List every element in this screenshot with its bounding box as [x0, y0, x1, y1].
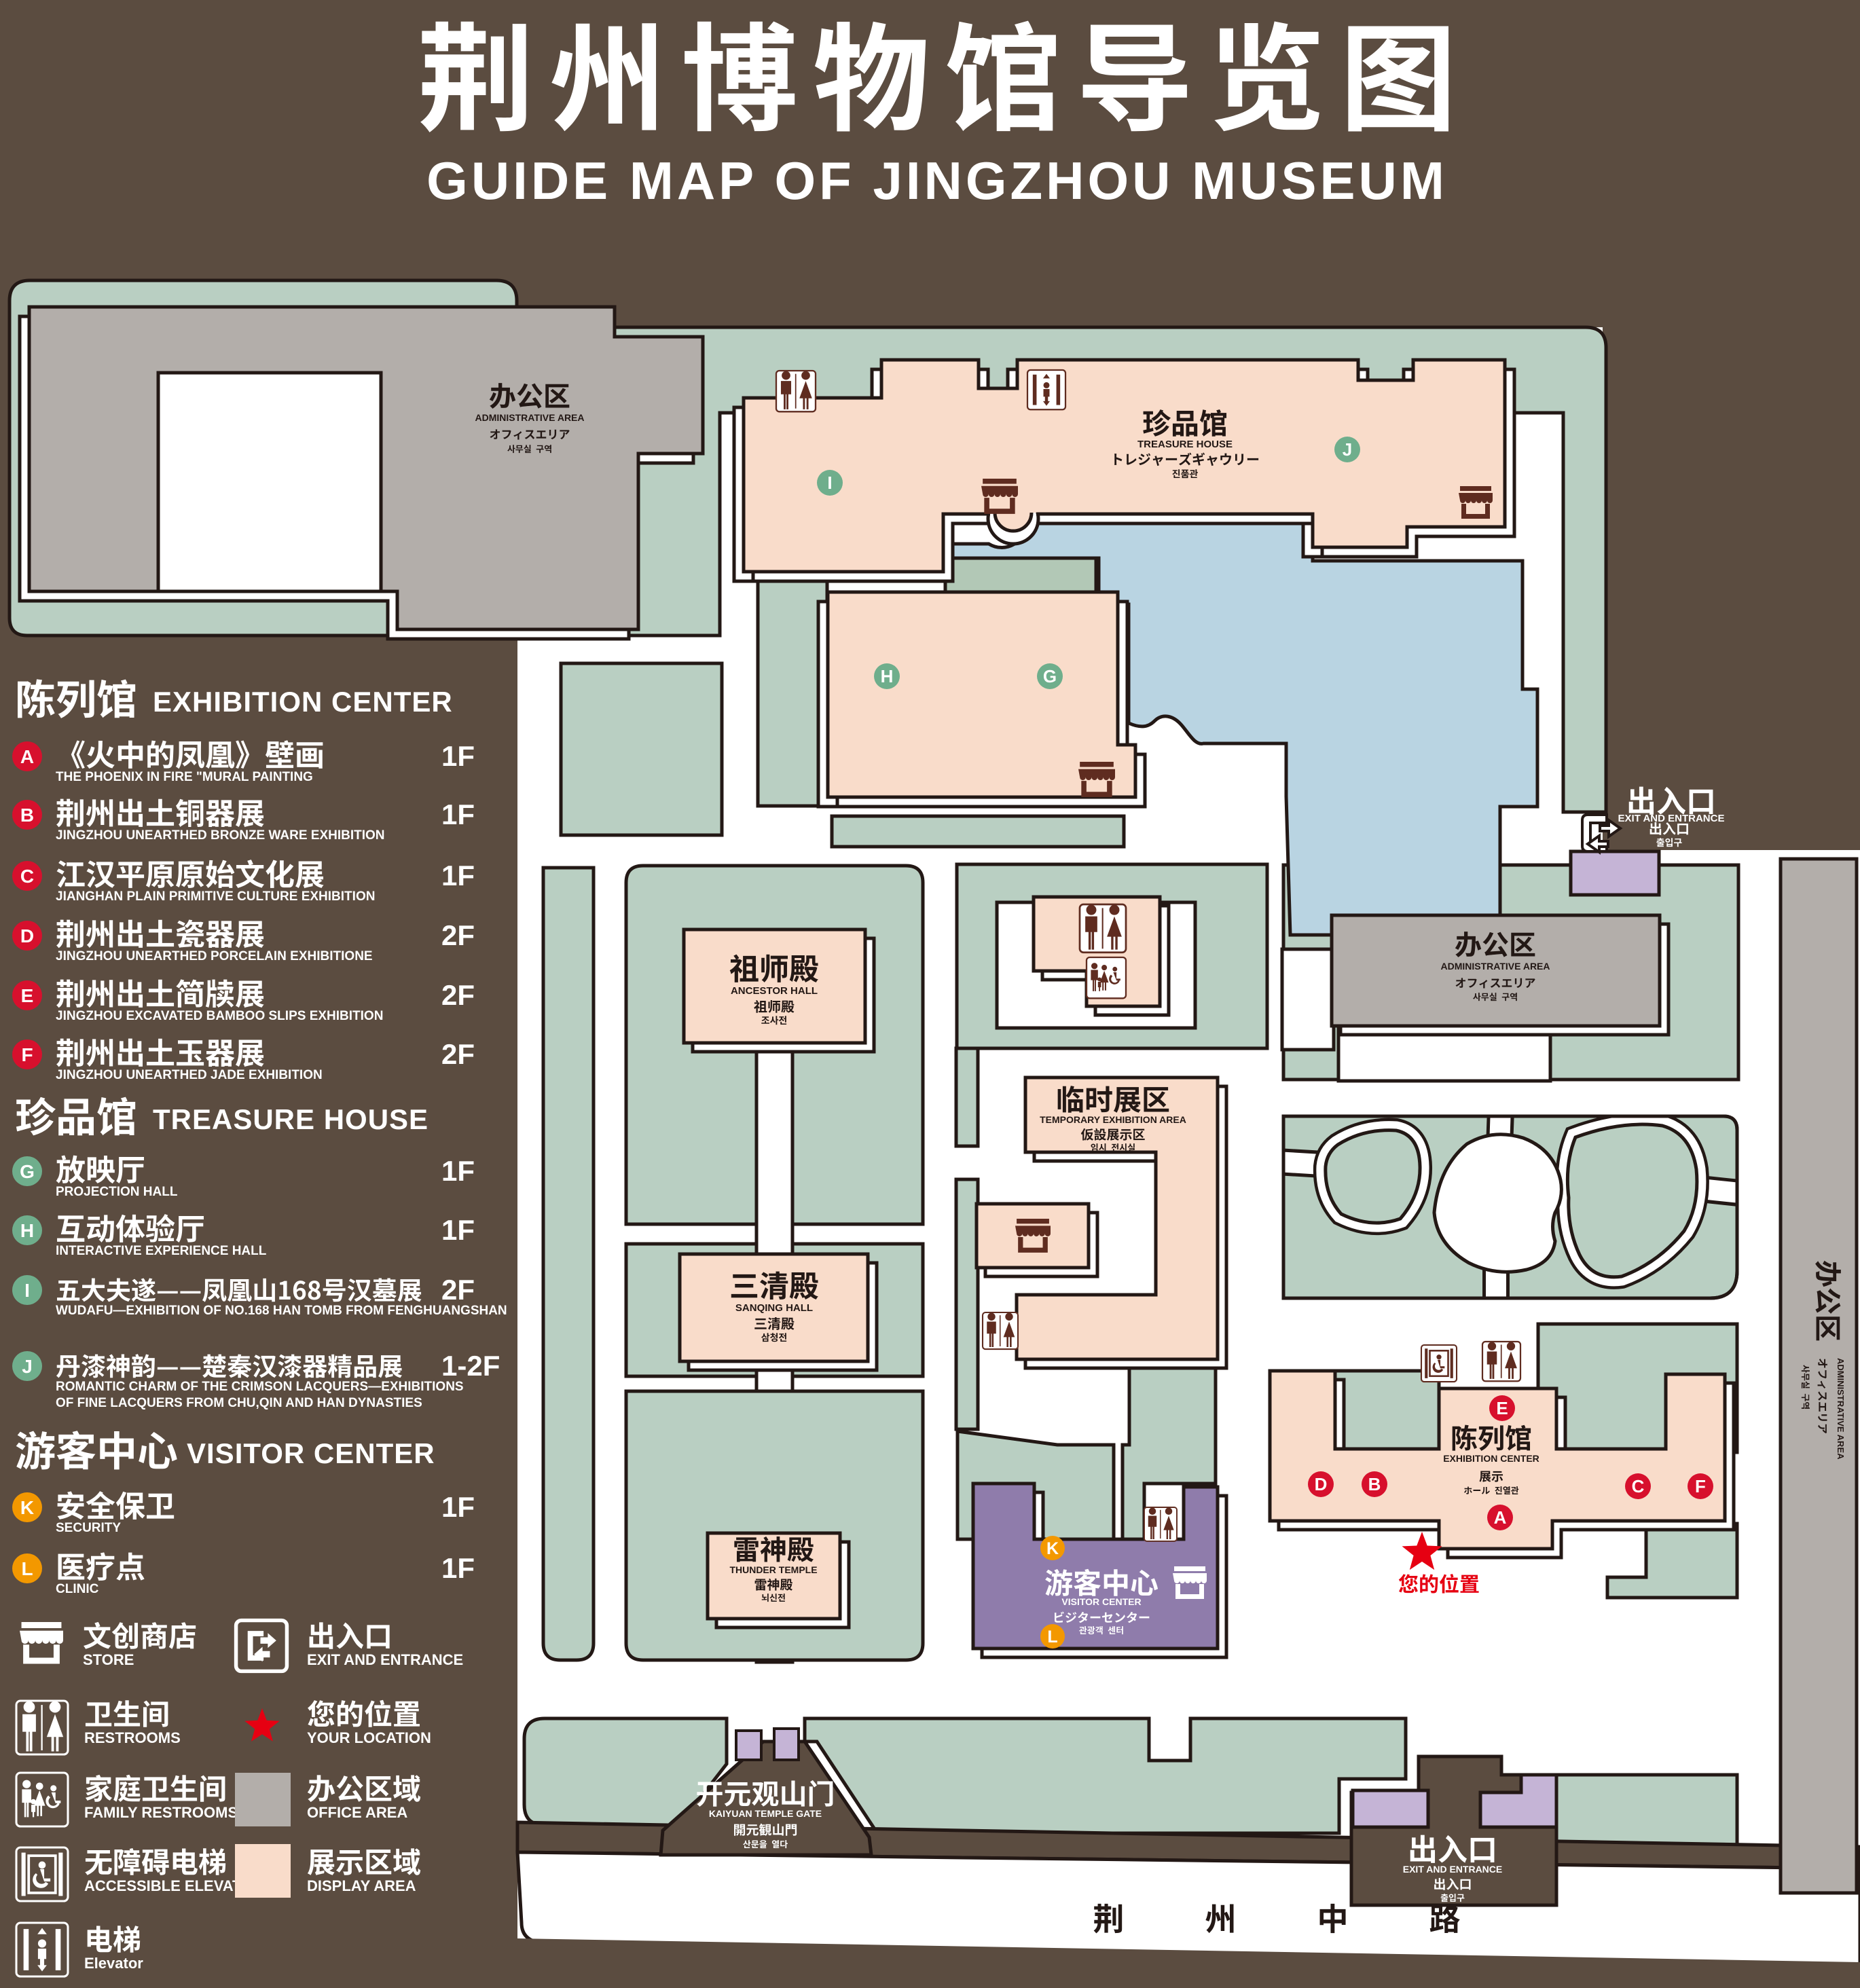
svg-text:2F: 2F [441, 1038, 475, 1070]
svg-text:1F: 1F [441, 1552, 475, 1584]
svg-text:B: B [20, 805, 34, 826]
svg-text:1F: 1F [441, 860, 475, 891]
svg-text:FAMILY RESTROOMS: FAMILY RESTROOMS [84, 1804, 238, 1821]
svg-text:F: F [1695, 1476, 1706, 1496]
svg-text:J: J [22, 1356, 33, 1377]
svg-text:1F: 1F [441, 1491, 475, 1523]
svg-text:JINGZHOU UNEARTHED PORCELAIN E: JINGZHOU UNEARTHED PORCELAIN EXHIBITIONE [56, 949, 373, 963]
svg-text:G: G [20, 1161, 35, 1182]
svg-text:VISITOR CENTER: VISITOR CENTER [187, 1437, 435, 1469]
svg-text:JINGZHOU UNEARTHED BRONZE WARE: JINGZHOU UNEARTHED BRONZE WARE EXHIBITIO… [56, 828, 385, 843]
svg-text:L: L [1047, 1627, 1057, 1646]
svg-text:C: C [20, 866, 34, 887]
svg-text:EXIT AND ENTRANCE: EXIT AND ENTRANCE [1618, 813, 1725, 824]
svg-text:KAIYUAN TEMPLE GATE: KAIYUAN TEMPLE GATE [709, 1808, 822, 1819]
svg-text:H: H [20, 1220, 34, 1241]
svg-text:DISPLAY AREA: DISPLAY AREA [307, 1877, 416, 1894]
svg-text:A: A [1494, 1507, 1507, 1528]
svg-text:JINGZHOU EXCAVATED BAMBOO SLIP: JINGZHOU EXCAVATED BAMBOO SLIPS EXHIBITI… [56, 1009, 383, 1023]
svg-text:TREASURE HOUSE: TREASURE HOUSE [1137, 439, 1233, 450]
svg-text:PROJECTION HALL: PROJECTION HALL [56, 1185, 178, 1199]
svg-text:Elevator: Elevator [84, 1955, 143, 1972]
svg-text:E: E [1496, 1398, 1508, 1418]
svg-text:2F: 2F [441, 919, 475, 951]
svg-text:THUNDER TEMPLE: THUNDER TEMPLE [729, 1564, 817, 1575]
svg-text:H: H [881, 666, 894, 686]
svg-text:1F: 1F [441, 1155, 475, 1187]
svg-text:J: J [1343, 439, 1352, 460]
svg-text:TREASURE HOUSE: TREASURE HOUSE [153, 1103, 428, 1135]
svg-text:K: K [1046, 1539, 1059, 1558]
svg-text:ADMINISTRATIVE AREA: ADMINISTRATIVE AREA [1441, 961, 1550, 972]
svg-text:OF FINE LACQUERS FROM CHU,QIN: OF FINE LACQUERS FROM CHU,QIN AND HAN DY… [56, 1396, 422, 1410]
svg-text:L: L [21, 1558, 33, 1579]
svg-text:F: F [21, 1044, 33, 1065]
svg-text:EXIT AND ENTRANCE: EXIT AND ENTRANCE [307, 1651, 463, 1668]
svg-text:RESTROOMS: RESTROOMS [84, 1729, 181, 1746]
svg-text:WUDAFU—EXHIBITION OF NO.168 HA: WUDAFU—EXHIBITION OF NO.168 HAN TOMB FRO… [56, 1304, 507, 1318]
svg-text:B: B [1368, 1474, 1381, 1494]
svg-text:YOUR LOCATION: YOUR LOCATION [307, 1729, 431, 1746]
svg-text:I: I [24, 1280, 30, 1301]
svg-text:EXHIBITION CENTER: EXHIBITION CENTER [153, 686, 453, 718]
svg-text:K: K [20, 1497, 34, 1518]
svg-text:SECURITY: SECURITY [56, 1521, 121, 1535]
svg-text:I: I [827, 473, 832, 493]
svg-text:ROMANTIC CHARM OF THE CRIMSON: ROMANTIC CHARM OF THE CRIMSON LACQUERS—E… [56, 1380, 464, 1394]
svg-text:A: A [20, 746, 34, 767]
svg-text:E: E [21, 985, 34, 1006]
svg-text:JIANGHAN PLAIN PRIMITIVE CULTU: JIANGHAN PLAIN PRIMITIVE CULTURE EXHIBIT… [56, 889, 375, 904]
svg-text:1F: 1F [441, 1214, 475, 1246]
svg-text:EXIT AND ENTRANCE: EXIT AND ENTRANCE [1403, 1864, 1503, 1875]
svg-text:ANCESTOR HALL: ANCESTOR HALL [731, 985, 818, 997]
svg-text:C: C [1632, 1476, 1645, 1496]
svg-text:SANQING HALL: SANQING HALL [735, 1302, 813, 1314]
svg-text:INTERACTIVE EXPERIENCE HALL: INTERACTIVE EXPERIENCE HALL [56, 1244, 267, 1258]
svg-text:EXHIBITION CENTER: EXHIBITION CENTER [1443, 1453, 1539, 1464]
svg-text:STORE: STORE [83, 1651, 134, 1668]
svg-text:1F: 1F [441, 740, 475, 772]
svg-text:JINGZHOU UNEARTHED JADE EXHIBI: JINGZHOU UNEARTHED JADE EXHIBITION [56, 1068, 323, 1082]
svg-text:1-2F: 1-2F [441, 1350, 500, 1382]
svg-text:2F: 2F [441, 1274, 475, 1306]
svg-text:THE PHOENIX IN FIRE "MURAL PAI: THE PHOENIX IN FIRE "MURAL PAINTING [56, 770, 313, 784]
svg-text:G: G [1043, 666, 1057, 686]
svg-text:CLINIC: CLINIC [56, 1582, 99, 1596]
svg-text:D: D [1315, 1474, 1328, 1494]
svg-text:2F: 2F [441, 979, 475, 1011]
svg-text:GUIDE MAP OF JINGZHOU MUSEUM: GUIDE MAP OF JINGZHOU MUSEUM [426, 151, 1448, 210]
svg-text:VISITOR CENTER: VISITOR CENTER [1061, 1596, 1141, 1607]
svg-text:ADMINISTRATIVE AREA: ADMINISTRATIVE AREA [1836, 1358, 1846, 1460]
svg-text:OFFICE AREA: OFFICE AREA [307, 1804, 407, 1821]
svg-text:TEMPORARY EXHIBITION AREA: TEMPORARY EXHIBITION AREA [1040, 1114, 1186, 1125]
svg-text:D: D [20, 925, 34, 946]
svg-text:ADMINISTRATIVE AREA: ADMINISTRATIVE AREA [475, 412, 585, 423]
svg-text:1F: 1F [441, 798, 475, 830]
